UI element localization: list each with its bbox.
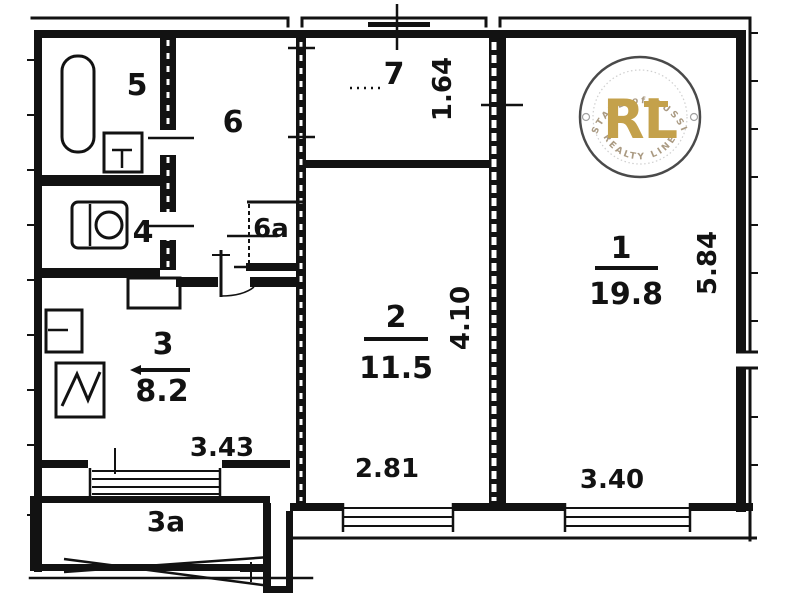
floor-plan-page: 5 6 4 6a 7 1.64 1 19.8 5.84 2 11.5 4.10 … bbox=[0, 0, 800, 600]
room-1-area: 19.8 bbox=[589, 277, 663, 312]
room-2-area: 11.5 bbox=[359, 351, 433, 386]
dim-room2-height: 4.10 bbox=[446, 286, 476, 350]
kitchen-door bbox=[212, 250, 254, 297]
bathtub-icon bbox=[62, 56, 94, 152]
kitchen-niche bbox=[128, 278, 180, 308]
dim-room7-width: 1.64 bbox=[428, 57, 458, 121]
dim-room2-width: 2.81 bbox=[355, 454, 419, 484]
dim-room1-width: 3.40 bbox=[580, 465, 644, 495]
wall-break bbox=[736, 352, 758, 368]
room-4-number: 4 bbox=[133, 215, 154, 250]
room-1-number: 1 bbox=[611, 231, 632, 266]
left-wall-ticks bbox=[27, 60, 34, 515]
door-ticks bbox=[148, 48, 523, 267]
window-room1 bbox=[565, 503, 690, 532]
floor-plan: 5 6 4 6a 7 1.64 1 19.8 5.84 2 11.5 4.10 … bbox=[0, 0, 800, 600]
room-6a-number: 6a bbox=[253, 214, 289, 244]
stamp-initials-crossbar bbox=[644, 101, 668, 107]
kitchen-sink-icon bbox=[46, 310, 82, 352]
room-2-number: 2 bbox=[386, 300, 407, 335]
dim-room1-height: 5.84 bbox=[693, 231, 723, 295]
room-5-number: 5 bbox=[127, 68, 148, 103]
stove-icon bbox=[56, 363, 104, 417]
dim-room3-width: 3.43 bbox=[190, 433, 254, 463]
sink-icon bbox=[104, 133, 142, 172]
toilet-icon bbox=[72, 202, 127, 248]
room-3-number: 3 bbox=[153, 327, 174, 362]
balcony-diagonals bbox=[64, 557, 270, 586]
room-7-number: 7 bbox=[384, 57, 405, 92]
room-6-number: 6 bbox=[223, 105, 244, 140]
window-room2 bbox=[343, 503, 453, 532]
room-3a-number: 3a bbox=[147, 505, 185, 538]
room7-top-cross bbox=[368, 4, 430, 50]
room-3-area: 8.2 bbox=[135, 374, 188, 409]
stamp-initials: RL bbox=[603, 88, 677, 151]
